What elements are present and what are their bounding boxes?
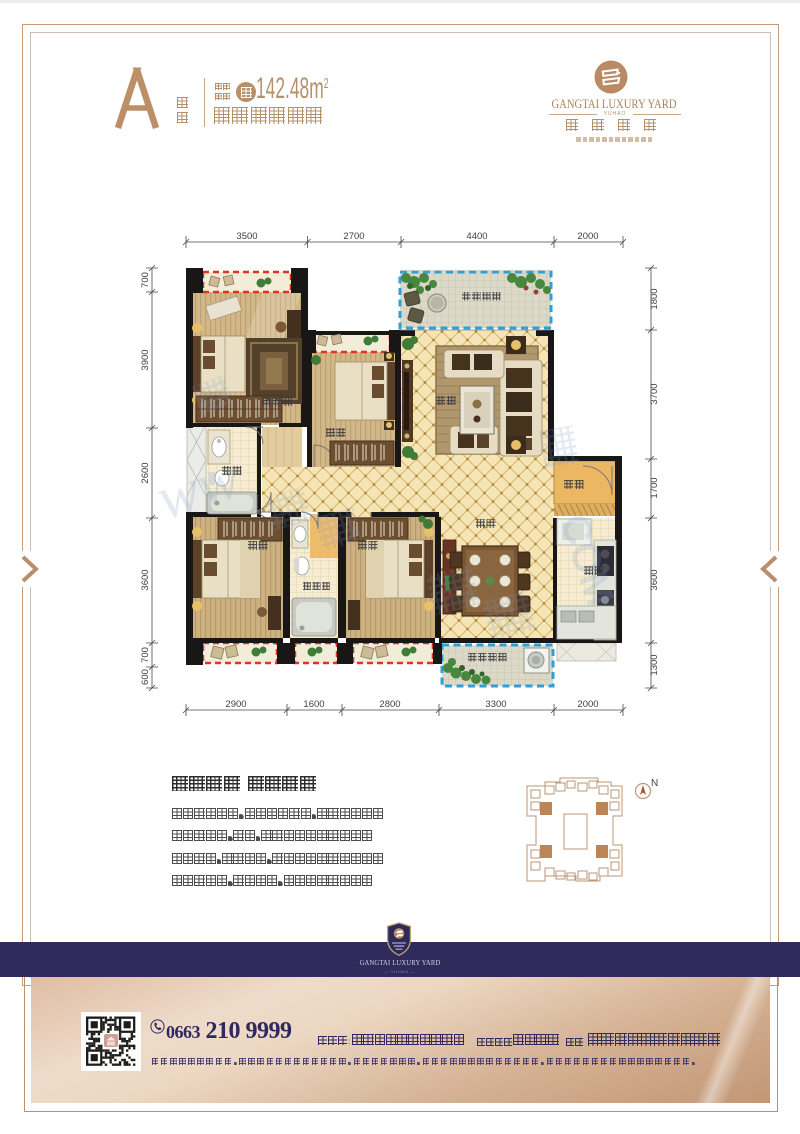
svg-text:2700: 2700: [343, 231, 364, 242]
svg-text:1300: 1300: [649, 654, 660, 675]
svg-text:3900: 3900: [140, 349, 151, 370]
svg-text:3600: 3600: [140, 569, 151, 590]
svg-text:600: 600: [140, 669, 151, 685]
svg-text:1600: 1600: [303, 699, 324, 710]
svg-text:3700: 3700: [649, 383, 660, 404]
svg-text:N: N: [651, 778, 658, 789]
svg-text:2900: 2900: [225, 699, 246, 710]
svg-text:2800: 2800: [379, 699, 400, 710]
svg-text:3500: 3500: [236, 231, 257, 242]
svg-text:1800: 1800: [649, 288, 660, 309]
svg-text:700: 700: [140, 647, 151, 663]
svg-text:1700: 1700: [649, 477, 660, 498]
svg-text:2000: 2000: [577, 699, 598, 710]
svg-text:2000: 2000: [577, 231, 598, 242]
svg-text:3600: 3600: [649, 569, 660, 590]
svg-text:4400: 4400: [466, 231, 487, 242]
svg-text:3300: 3300: [485, 699, 506, 710]
svg-text:700: 700: [140, 272, 151, 288]
